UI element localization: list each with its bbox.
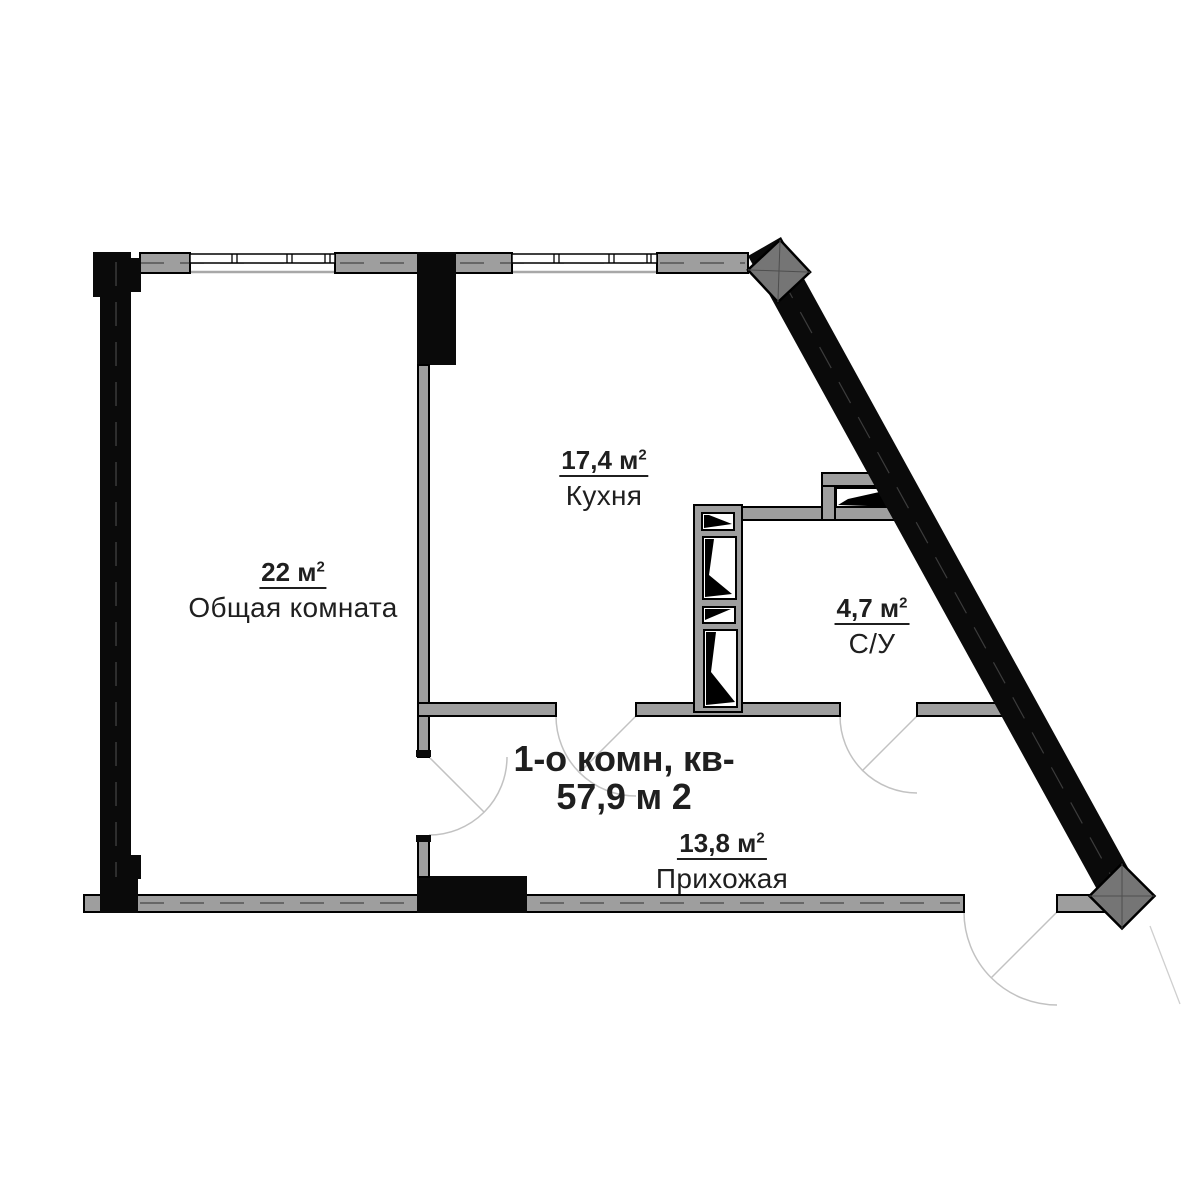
bathroom-door-leaf xyxy=(862,716,917,771)
left-wall-step-bottom xyxy=(131,855,141,879)
room-name-living: Общая комната xyxy=(188,592,397,624)
hallway-wall-segment-c xyxy=(917,703,1008,716)
entrance-door-leaf xyxy=(991,912,1057,978)
divider-wall-lower xyxy=(418,841,429,877)
room-area-kitchen: 17,4 м2 xyxy=(559,446,648,477)
room-label-bathroom: 4,7 м2 С/У xyxy=(835,594,910,660)
room-name-hallway: Прихожая xyxy=(656,863,788,895)
room-name-bathroom: С/У xyxy=(835,628,910,660)
adjacent-structure-line xyxy=(1150,926,1180,1004)
window-1 xyxy=(190,254,335,263)
divider-wall-cap-1 xyxy=(416,750,431,757)
living-door-leaf xyxy=(429,757,484,812)
apartment-title-line2: 57,9 м 2 xyxy=(514,778,735,816)
room-label-kitchen: 17,4 м2 Кухня xyxy=(559,446,648,512)
diagonal-wall xyxy=(748,237,1143,913)
vent-shaft xyxy=(694,505,742,712)
room-area-living: 22 м2 xyxy=(188,558,397,589)
room-area-hallway: 13,8 м2 xyxy=(656,829,788,860)
left-wall xyxy=(93,252,141,913)
divider-wall-pier xyxy=(417,252,456,365)
floor-plan-page: 22 м2 Общая комната 17,4 м2 Кухня 4,7 м2… xyxy=(0,0,1181,1181)
apartment-title: 1-о комн, кв- 57,9 м 2 xyxy=(514,740,735,816)
apartment-title-line1: 1-о комн, кв- xyxy=(514,740,735,778)
floor-plan-svg xyxy=(0,0,1181,1181)
divider-wall-upper xyxy=(418,365,429,757)
room-area-bathroom: 4,7 м2 xyxy=(835,594,910,625)
divider-wall xyxy=(416,365,431,877)
hallway-wall-segment-a xyxy=(418,703,556,716)
room-name-kitchen: Кухня xyxy=(559,480,648,512)
left-wall-step-top xyxy=(131,258,141,292)
bottom-wall-black-pier xyxy=(417,876,527,913)
divider-wall-cap-2 xyxy=(416,835,431,842)
room-label-hallway: 13,8 м2 Прихожая xyxy=(656,829,788,895)
bottom-wall-black-corner xyxy=(100,877,138,913)
room-label-living: 22 м2 Общая комната xyxy=(188,558,397,624)
window-2 xyxy=(512,254,657,263)
bottom-wall xyxy=(84,876,1109,913)
